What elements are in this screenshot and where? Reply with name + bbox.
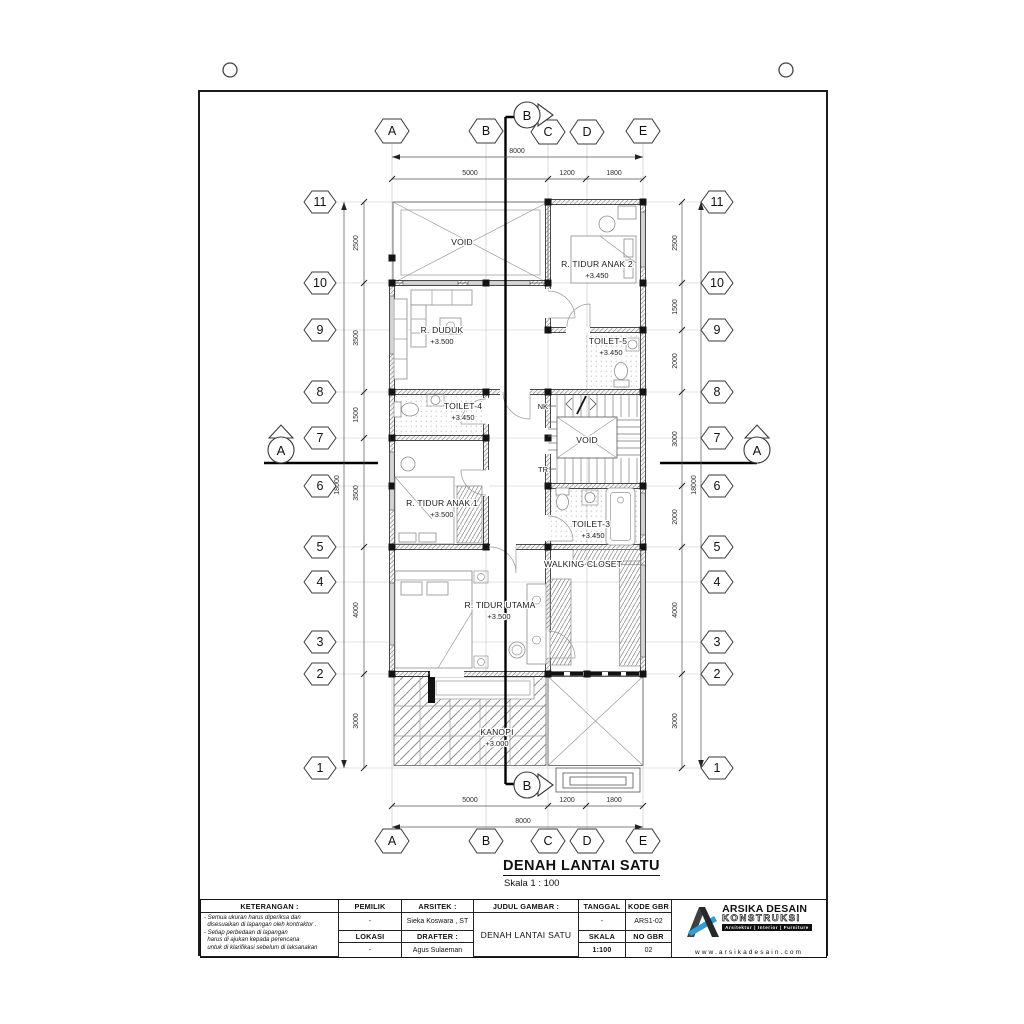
- label-toilet5: TOILET-5: [589, 336, 627, 346]
- dim-bottom-total: 8000: [515, 818, 531, 825]
- drawing-scale: Skala 1 : 100: [504, 878, 559, 889]
- dim-right-total: 18000: [691, 475, 698, 495]
- svg-text:B: B: [482, 834, 490, 848]
- kode-header: KODE GBR: [626, 900, 672, 913]
- label-utama: R. TIDUR UTAMA: [465, 600, 536, 610]
- svg-text:+3.450: +3.450: [581, 531, 604, 540]
- grid-col-C: C: [543, 125, 552, 139]
- label-toilet4: TOILET-4: [444, 401, 482, 411]
- svg-text:+3.500: +3.500: [430, 510, 453, 519]
- punch-holes: [223, 63, 793, 77]
- grid-bubbles-bottom: A B C D E: [375, 829, 660, 853]
- svg-text:6: 6: [714, 479, 721, 493]
- drafter-value: Agus Sulaeman: [402, 943, 474, 957]
- dim-right-6: 4000: [672, 602, 679, 618]
- dim-right-4: 3000: [672, 431, 679, 447]
- arsitek-header: ARSITEK :: [402, 900, 474, 913]
- keterangan-header: KETERANGAN :: [201, 900, 339, 913]
- dim-top-2: 1200: [559, 170, 575, 177]
- svg-text:+3.450: +3.450: [451, 413, 474, 422]
- dim-bottom-3: 1800: [606, 797, 622, 804]
- wardrobe: [457, 486, 482, 543]
- grid-col-B: B: [482, 124, 490, 138]
- svg-text:3: 3: [317, 635, 324, 649]
- dim-right-1: 2500: [672, 235, 679, 251]
- svg-text:D: D: [582, 834, 591, 848]
- logo-cell: ARSIKA DESAIN KONSTRUKSI Arsitektur | In…: [672, 900, 826, 957]
- svg-text:6: 6: [317, 479, 324, 493]
- label-void-stair: VOID: [576, 435, 598, 445]
- dim-left-6: 3000: [353, 713, 360, 729]
- logo-website: www.arsikadesain.com: [676, 949, 822, 956]
- svg-text:+3.000: +3.000: [485, 739, 508, 748]
- label-closet: WALKING CLOSET: [544, 559, 622, 569]
- dim-left-3: 1500: [353, 407, 360, 423]
- section-marker-a-right: A: [753, 443, 762, 458]
- svg-text:2: 2: [317, 667, 324, 681]
- logo-name-line2: KONSTRUKSI: [722, 914, 801, 923]
- nogbr-header: NO GBR: [626, 931, 672, 943]
- keterangan-body: - Semua ukuran harus diperiksa dan dises…: [201, 913, 339, 957]
- svg-text:4: 4: [317, 575, 324, 589]
- dim-top-1: 5000: [462, 170, 478, 177]
- entry-steps: [556, 768, 640, 792]
- svg-text:10: 10: [710, 276, 724, 290]
- furniture-utama: [395, 571, 546, 668]
- tanggal-header: TANGGAL: [579, 900, 626, 913]
- arsitek-value: Sieka Koswara , ST: [402, 913, 474, 931]
- dim-left-4: 3500: [353, 485, 360, 501]
- label-nk: NK: [538, 402, 548, 411]
- svg-text:5: 5: [317, 540, 324, 554]
- kanopi-step: [432, 677, 534, 699]
- svg-text:4: 4: [714, 575, 721, 589]
- grid-bubbles-right: 11 10 9 8 7 6 5 4 3 2 1: [701, 191, 733, 779]
- svg-text:3: 3: [714, 635, 721, 649]
- skala-header: SKALA: [579, 931, 626, 943]
- label-toilet3: TOILET-3: [572, 519, 610, 529]
- svg-text:10: 10: [313, 276, 327, 290]
- section-marker-b-bottom: B: [523, 778, 532, 793]
- dim-right-7: 3000: [672, 713, 679, 729]
- logo-tagline: Arsitektur | Interior | Furniture: [722, 924, 812, 931]
- dim-right-3: 2000: [672, 353, 679, 369]
- skala-value: 1:100: [579, 943, 626, 957]
- label-anak1: R. TIDUR ANAK 1: [406, 498, 478, 508]
- drafter-header: DRAFTER :: [402, 931, 474, 943]
- dim-left-5: 4000: [353, 602, 360, 618]
- dim-left-1: 2500: [353, 235, 360, 251]
- svg-text:A: A: [388, 834, 397, 848]
- kode-value: ARS1-02: [626, 913, 672, 931]
- arsika-logo-mark: [686, 904, 720, 938]
- dim-left-2: 3500: [353, 330, 360, 346]
- svg-text:2: 2: [714, 667, 721, 681]
- svg-text:1: 1: [317, 761, 324, 775]
- pemilik-header: PEMILIK: [339, 900, 402, 913]
- label-void-top: VOID: [451, 237, 473, 247]
- svg-text:7: 7: [317, 431, 324, 445]
- grid-bubbles-left: 11 10 9 8 7 6 5 4 3 2 1: [304, 191, 336, 779]
- svg-text:C: C: [543, 834, 552, 848]
- label-kanopi: KANOPI: [480, 727, 513, 737]
- judul-header: JUDUL GAMBAR :: [474, 900, 579, 913]
- drawing-title: DENAH LANTAI SATU: [503, 857, 660, 876]
- title-block: KETERANGAN : PEMILIK ARSITEK : JUDUL GAM…: [200, 899, 827, 958]
- grid-row-11: 11: [314, 195, 327, 209]
- section-marker-b-top: B: [523, 108, 532, 123]
- svg-text:+3.500: +3.500: [430, 337, 453, 346]
- label-anak2: R. TIDUR ANAK 2: [561, 259, 633, 269]
- svg-text:9: 9: [317, 323, 324, 337]
- svg-text:1: 1: [714, 761, 721, 775]
- judul-value: DENAH LANTAI SATU: [474, 913, 579, 957]
- dim-top-total: 8000: [509, 148, 525, 155]
- pemilik-value: -: [339, 913, 402, 931]
- grid-col-D: D: [582, 125, 591, 139]
- svg-text:+3.500: +3.500: [487, 612, 510, 621]
- svg-text:7: 7: [714, 431, 721, 445]
- label-tr: TR: [538, 465, 549, 474]
- dim-bottom-1: 5000: [462, 797, 478, 804]
- label-duduk: R. DUDUK: [421, 325, 464, 335]
- dim-right-5: 2000: [672, 509, 679, 525]
- lokasi-value: -: [339, 943, 402, 957]
- nogbr-value: 02: [626, 943, 672, 957]
- grid-col-A: A: [388, 124, 397, 138]
- dim-top-3: 1800: [606, 170, 622, 177]
- svg-text:8: 8: [317, 385, 324, 399]
- svg-text:9: 9: [714, 323, 721, 337]
- section-marker-a-left: A: [277, 443, 286, 458]
- grid-col-E: E: [639, 124, 647, 138]
- drawing-sheet: 5000 1200 1800 8000 5000 1200 1800 8000 …: [0, 0, 1024, 1024]
- dim-bottom-2: 1200: [559, 797, 575, 804]
- svg-text:5: 5: [714, 540, 721, 554]
- svg-text:11: 11: [711, 195, 724, 209]
- svg-text:+3.450: +3.450: [599, 348, 622, 357]
- tanggal-value: -: [579, 913, 626, 931]
- dim-right-2: 1500: [672, 299, 679, 315]
- punch-hole-right: [779, 63, 793, 77]
- punch-hole-left: [223, 63, 237, 77]
- svg-text:+3.450: +3.450: [585, 271, 608, 280]
- lokasi-header: LOKASI: [339, 931, 402, 943]
- svg-text:E: E: [639, 834, 647, 848]
- svg-text:8: 8: [714, 385, 721, 399]
